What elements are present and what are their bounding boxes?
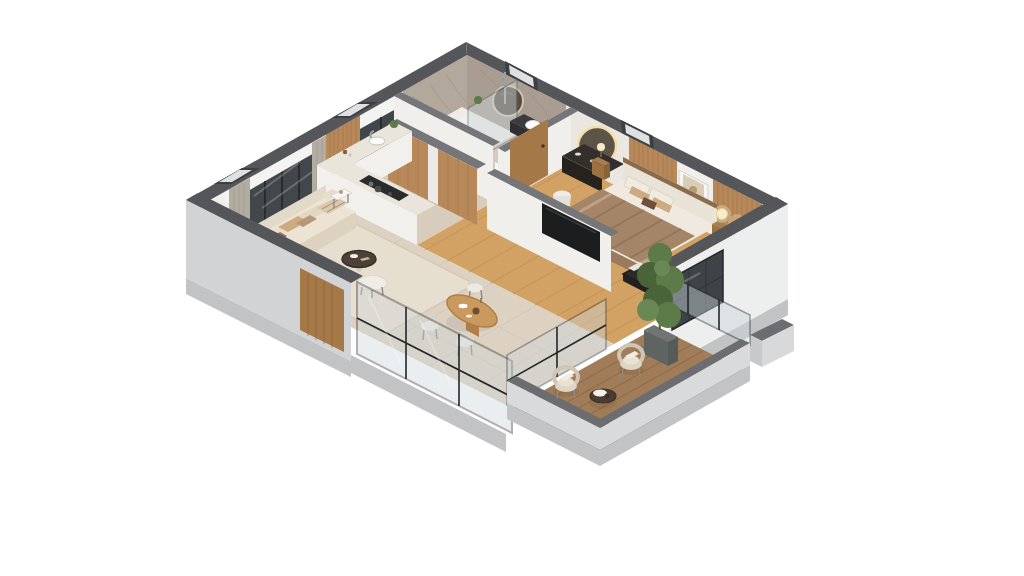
side-table-vase <box>339 190 343 194</box>
coffee-table-tray <box>350 254 358 258</box>
wardrobe-divider <box>428 144 438 205</box>
cooktop-burner <box>388 192 392 196</box>
balcony-table-bowl <box>605 394 610 399</box>
counter-plant <box>390 120 398 128</box>
dining-bowl <box>473 308 480 315</box>
kitchen-sink <box>369 137 385 145</box>
counter-bottle-2 <box>348 153 352 157</box>
floor-plan-render <box>0 0 1024 576</box>
nightstand-lamp-right <box>717 209 728 220</box>
dining-plate-2 <box>466 315 472 318</box>
nightstand-lamp-left <box>597 143 605 151</box>
cooktop-pot-2 <box>369 182 374 187</box>
coffee-table <box>342 251 376 268</box>
isometric-apartment-svg <box>0 0 1024 576</box>
bath-plant <box>474 96 482 104</box>
planter-side <box>668 337 678 366</box>
nightstand-left-side <box>604 163 610 180</box>
vanity-decor <box>575 152 581 155</box>
counter-bottle <box>343 150 347 154</box>
cooktop-pot <box>375 186 381 192</box>
dining-plate <box>459 304 468 308</box>
door-handle <box>541 144 545 148</box>
